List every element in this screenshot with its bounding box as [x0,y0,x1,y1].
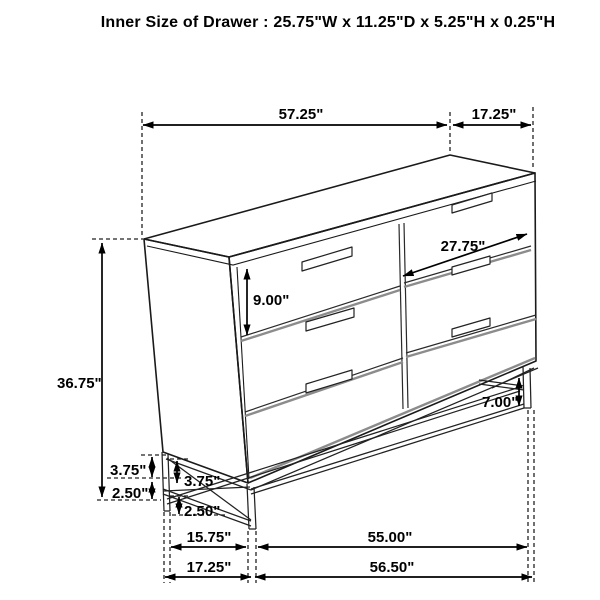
dim-base-side-outer: 17.25" [165,559,251,577]
dim-top-width: 57.25" [143,106,447,125]
dim-label-drawer-front-height: 9.00" [253,292,289,309]
diagram-page: Inner Size of Drawer : 25.75"W x 11.25"D… [0,0,600,600]
leg-front-left [247,484,256,529]
dim-label-base-front-outer: 56.50" [370,559,415,576]
dim-top-depth: 17.25" [453,106,531,125]
drawer-handle [306,370,352,393]
dim-label-frame-lower-inner: 2.50" [184,503,220,520]
dim-label-overall-height: 36.75" [57,375,102,392]
extension-lines [92,107,534,583]
drawer-handle [302,247,352,271]
dresser-dimension-diagram: Inner Size of Drawer : 25.75"W x 11.25"D… [0,0,600,600]
dim-frame-lower-outer: 2.50" [112,482,152,502]
dresser-body [144,155,536,483]
dim-base-front-outer: 56.50" [255,559,532,577]
dim-drawer-front-height: 9.00" [247,269,289,335]
dim-label-frame-upper-inner: 3.75" [184,473,220,490]
dresser-left-panel [144,239,248,483]
dim-base-front-inner: 55.00" [258,529,527,547]
diagram-title: Inner Size of Drawer : 25.75"W x 11.25"D… [101,14,556,31]
leg-back-left [162,452,170,511]
dim-label-top-width: 57.25" [279,106,324,123]
dim-frame-lower-inner: 2.50" [179,497,220,520]
dim-overall-height: 36.75" [57,243,102,497]
drawer-handle [452,193,492,213]
dim-label-base-side-outer: 17.25" [187,559,232,576]
dim-label-frame-lower-outer: 2.50" [112,485,148,502]
dim-base-side-inner: 15.75" [171,529,246,547]
dim-label-base-side-inner: 15.75" [187,529,232,546]
drawer-handle [452,256,490,275]
dim-label-drawer-width: 27.75" [441,238,486,255]
dim-label-top-depth: 17.25" [472,106,517,123]
dim-label-frame-upper-outer: 3.75" [110,462,146,479]
dim-label-base-front-inner: 55.00" [368,529,413,546]
dim-label-leg-height: 7.00" [482,394,518,411]
dim-frame-upper-outer: 3.75" [110,457,152,479]
